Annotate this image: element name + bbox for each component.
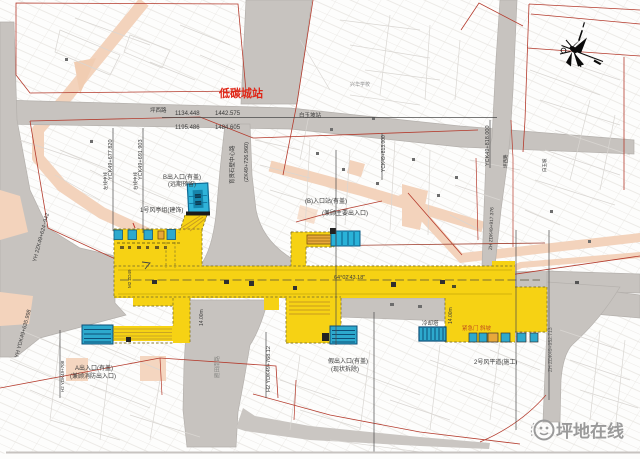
svg-text:左线中线: 左线中线	[102, 172, 109, 190]
svg-text:A出入口(有盖): A出入口(有盖)	[75, 364, 113, 372]
svg-text:(B)入口站(有盖): (B)入口站(有盖)	[305, 197, 347, 205]
svg-text:YCK49+813.000: YCK49+813.000	[381, 135, 387, 172]
svg-text:紧急门 斜坡: 紧急门 斜坡	[462, 324, 492, 332]
svg-text:坪西路: 坪西路	[150, 106, 167, 114]
svg-text:假出入口(有盖): 假出入口(有盖)	[328, 357, 368, 365]
svg-text:1442.575: 1442.575	[215, 111, 241, 117]
svg-text:白玉坡站: 白玉坡站	[299, 111, 322, 119]
svg-text:1195.486: 1195.486	[175, 125, 200, 131]
svg-text:右线中线: 右线中线	[132, 172, 139, 190]
svg-text:坪西路: 坪西路	[502, 154, 509, 168]
svg-text:14.00m: 14.00m	[199, 309, 205, 326]
svg-text:(兼顾消防出入口): (兼顾消防出入口)	[70, 372, 116, 380]
svg-text:M2 ZD49: M2 ZD49	[127, 269, 132, 288]
svg-text:1号风亭组(建饰): 1号风亭组(建饰)	[140, 206, 183, 214]
svg-text:14.00m: 14.00m	[448, 307, 454, 324]
svg-text:(兼顾主要出入口): (兼顾主要出入口)	[322, 209, 368, 217]
svg-text:2号风平道(施工): 2号风平道(施工)	[474, 358, 517, 366]
svg-text:(ZK49+726.960): (ZK49+726.960)	[244, 142, 250, 182]
svg-text:1134.448: 1134.448	[175, 111, 200, 117]
svg-text:1484.605: 1484.605	[215, 125, 241, 131]
svg-text:低碳城站: 低碳城站	[218, 86, 263, 100]
svg-text:育贤石壁中心路: 育贤石壁中心路	[228, 145, 236, 184]
svg-text:坪地在线: 坪地在线	[556, 421, 624, 441]
svg-text:B出入口(有盖): B出入口(有盖)	[163, 173, 201, 181]
svg-text:白玉坡: 白玉坡	[541, 158, 548, 172]
svg-text:冷却塔: 冷却塔	[422, 319, 439, 327]
svg-text:YCK49+691.903: YCK49+691.903	[138, 139, 144, 180]
svg-text:H2 YDK49+708: H2 YDK49+708	[60, 360, 65, 392]
svg-text:64°02'43.18": 64°02'43.18"	[334, 275, 365, 281]
svg-text:YCK49+818.000: YCK49+818.000	[485, 125, 491, 166]
svg-text:兴华学校: 兴华学校	[350, 81, 370, 88]
svg-text:ZH ZDK49+952.713: ZH ZDK49+952.713	[548, 327, 554, 372]
svg-text:H2 YDK49+768.12: H2 YDK49+768.12	[266, 346, 272, 392]
svg-text:(现状拆除): (现状拆除)	[331, 365, 359, 373]
svg-text:(远期预留): (远期预留)	[168, 180, 196, 188]
svg-text:YCK49+677.820: YCK49+677.820	[108, 139, 114, 180]
svg-text:雁田南路: 雁田南路	[213, 355, 221, 378]
